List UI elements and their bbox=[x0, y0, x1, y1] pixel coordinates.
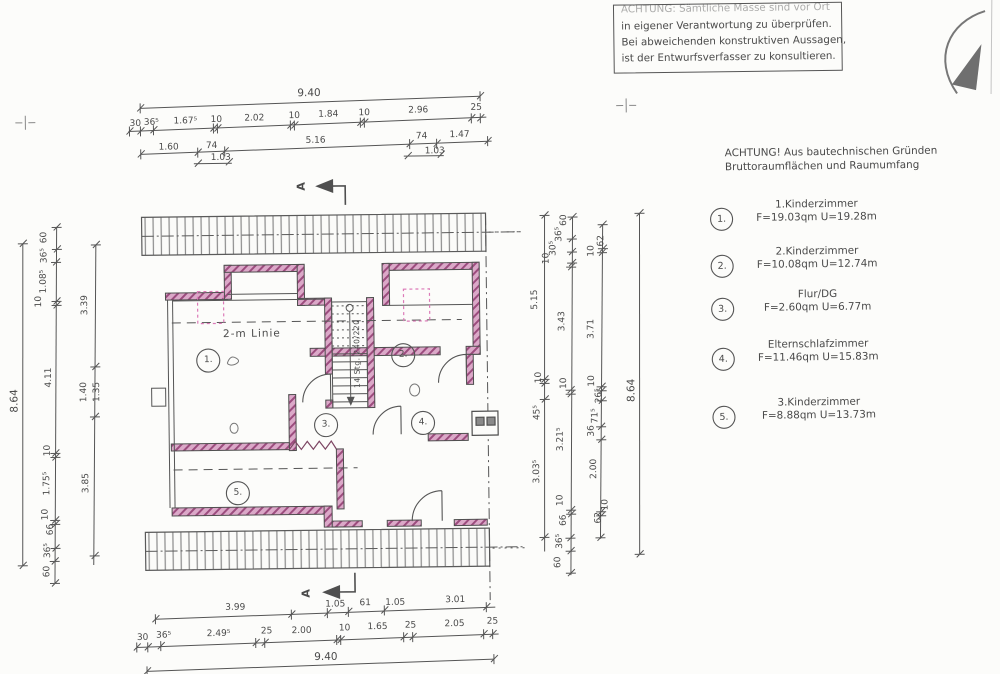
dim-label: 10 bbox=[358, 109, 370, 118]
drawing-sheet: ACHTUNG: Sämtliche Masse sind vor Ort in… bbox=[0, 0, 1000, 674]
dim-label: 60 bbox=[43, 566, 52, 578]
dim-label: 25 bbox=[470, 104, 482, 113]
dim-label: 10 bbox=[35, 296, 44, 308]
dim-label: 10 bbox=[560, 377, 569, 389]
dim-label: 2.02 bbox=[244, 114, 264, 123]
dim-label: 25 bbox=[261, 627, 273, 636]
walls bbox=[165, 262, 487, 529]
dim-label: 71⁵ bbox=[591, 408, 600, 423]
chimney-symbol bbox=[472, 411, 498, 435]
disclaimer-line: Bei abweichenden konstruktiven Aussagen, bbox=[621, 34, 846, 49]
dim-label: 3.85 bbox=[82, 473, 91, 493]
legend-note-line: Bruttoraumflächen und Raumumfang bbox=[725, 159, 920, 173]
north-arrow-icon bbox=[944, 0, 993, 95]
dim-label: 36 bbox=[588, 425, 597, 437]
dim-label: 10 bbox=[339, 624, 351, 633]
dim-label: 4.11 bbox=[45, 367, 54, 387]
dim-label: 8.64 bbox=[9, 389, 20, 413]
legend-room-number: 2. bbox=[718, 261, 727, 272]
dim-label: 5.16 bbox=[306, 137, 326, 146]
dim-label: 1.60 bbox=[159, 143, 179, 152]
dim-label: 1.40 bbox=[80, 382, 89, 402]
dim-label: 66 bbox=[47, 524, 56, 536]
stair-label: 14 Stg. 240/220 bbox=[353, 319, 361, 388]
dim-label: 1.75⁵ bbox=[43, 472, 52, 496]
dim-label: 1.03 bbox=[211, 154, 231, 163]
disclaimer-line: ACHTUNG: Sämtliche Masse sind vor Ort bbox=[621, 1, 830, 16]
dim-label: 10 bbox=[588, 375, 597, 387]
legend-room-metrics: F=2.60qm U=6.77m bbox=[764, 300, 872, 313]
room-number-marker: 3. bbox=[322, 421, 331, 430]
scanned-floor-plan-sheet: ACHTUNG: Sämtliche Masse sind vor Ort in… bbox=[0, 0, 1000, 674]
room-number-marker: 2. bbox=[399, 351, 408, 360]
dim-label: 36⁵ bbox=[40, 248, 49, 263]
dim-label: 60 bbox=[40, 232, 49, 244]
legend-room-metrics: F=19.03qm U=19.28m bbox=[756, 210, 877, 223]
dim-label: 1.67⁵ bbox=[173, 117, 197, 126]
dim-label: 2.96 bbox=[408, 106, 428, 115]
legend-room-metrics: F=10.08qm U=12.74m bbox=[757, 257, 878, 270]
dim-label: 3.71 bbox=[587, 319, 596, 339]
legend-room-number: 3. bbox=[718, 304, 727, 315]
dim-label: 25 bbox=[487, 618, 499, 627]
legend-room-metrics: F=11.46qm U=15.83m bbox=[758, 350, 879, 363]
dim-label: 1.08⁵ bbox=[40, 270, 49, 294]
section-marker-bottom: A bbox=[301, 589, 312, 598]
dim-label: 45⁵ bbox=[533, 405, 542, 420]
dim-label: 10 bbox=[211, 116, 223, 125]
dim-label: 36⁵ bbox=[556, 534, 565, 549]
dim-label: 36⁵ bbox=[144, 119, 159, 128]
dim-label: 3.03⁵ bbox=[533, 460, 542, 484]
dim-label: 1.35 bbox=[93, 382, 102, 402]
dim-label: 10 bbox=[44, 445, 53, 457]
dim-label: 3.99 bbox=[225, 604, 245, 613]
dim-label: 10 bbox=[42, 509, 51, 521]
legend-circles bbox=[710, 208, 735, 428]
legend-room-name: Flur/DG bbox=[798, 288, 837, 300]
dim-label: 74 bbox=[416, 132, 428, 141]
dim-label: 1.05 bbox=[325, 600, 345, 609]
dim-label: 62 bbox=[595, 512, 604, 524]
dim-label: 2.49⁵ bbox=[207, 630, 231, 639]
room-number-marker: 4. bbox=[419, 418, 428, 427]
dim-label: 60 bbox=[554, 557, 563, 569]
dim-label: 3.01 bbox=[445, 596, 465, 605]
legend-room-metrics: F=8.88qm U=13.73m bbox=[762, 408, 876, 421]
dim-label: 2.00 bbox=[590, 459, 599, 479]
disclaimer-line: in eigener Verantwortung zu überprüfen. bbox=[621, 18, 832, 33]
dim-label: 30 bbox=[137, 634, 149, 643]
legend-room-number: 5. bbox=[719, 412, 728, 423]
dim-label: 9.40 bbox=[314, 652, 338, 663]
legend-room-name: 1.Kinderzimmer bbox=[775, 198, 858, 211]
legend-room-number: 1. bbox=[717, 214, 726, 225]
thin-lines bbox=[150, 291, 475, 508]
dim-label: 10 bbox=[587, 245, 596, 257]
dim-label: 1.05 bbox=[385, 599, 405, 608]
dim-label: 36⁵ bbox=[44, 543, 53, 558]
two-meter-line-label: 2-m Linie bbox=[223, 328, 281, 339]
legend-room-name: Elternschlafzimmer bbox=[768, 338, 869, 351]
disclaimer-line: ist der Entwurfsverfasser zu konsultiere… bbox=[622, 50, 836, 65]
dim-label: 1.84 bbox=[318, 110, 338, 119]
dim-label: 36⁵ bbox=[555, 227, 564, 242]
room-number-marker: 1. bbox=[204, 356, 213, 365]
dim-label: 36⁵ bbox=[156, 632, 171, 641]
dim-label: 10 bbox=[542, 253, 551, 265]
dim-label: 8.64 bbox=[626, 379, 637, 403]
dim-label: 74 bbox=[206, 142, 218, 151]
dim-label: 2.00 bbox=[292, 627, 312, 636]
dim-label: 26⁵ bbox=[595, 388, 604, 403]
dim-label: 66 bbox=[560, 514, 569, 526]
dim-label: 3.39 bbox=[81, 295, 90, 315]
dim-label: 1.65 bbox=[367, 623, 387, 632]
dim-label: 62 bbox=[597, 235, 606, 247]
dim-label: 1.47 bbox=[449, 131, 469, 140]
dim-label: 10 bbox=[556, 494, 565, 506]
dim-label: 10 bbox=[535, 372, 544, 384]
section-marker-top: A bbox=[296, 182, 307, 191]
dim-label: 30 bbox=[130, 120, 142, 129]
room-marker-circles bbox=[197, 343, 436, 505]
dim-label: 10 bbox=[289, 112, 301, 121]
legend-room-name: 3.Kinderzimmer bbox=[777, 396, 860, 409]
dim-label: 10 bbox=[601, 499, 610, 511]
dim-label: 1.03 bbox=[425, 147, 445, 156]
room-number-marker: 5. bbox=[234, 489, 243, 498]
dim-label: 2.05 bbox=[444, 620, 464, 629]
dim-label: 9.40 bbox=[297, 88, 321, 99]
disclaimer-box: ACHTUNG: Sämtliche Masse sind vor Ort in… bbox=[613, 2, 843, 74]
dim-label: 3.43 bbox=[558, 311, 567, 331]
dim-label: 25 bbox=[405, 622, 417, 631]
dim-label: 60 bbox=[560, 214, 569, 226]
dim-label: 5.15 bbox=[531, 289, 540, 309]
dim-label: 61 bbox=[359, 599, 371, 608]
legend-room-name: 2.Kinderzimmer bbox=[776, 245, 859, 258]
legend-room-number: 4. bbox=[719, 354, 728, 365]
dim-label: 3.21⁵ bbox=[557, 427, 566, 451]
